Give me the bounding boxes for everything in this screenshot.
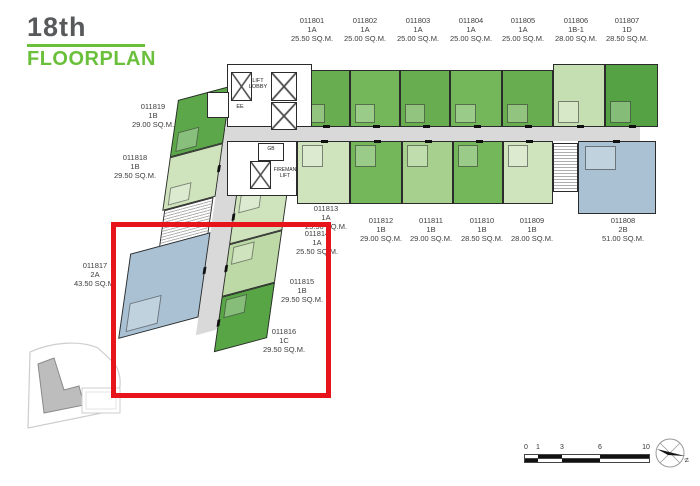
unit-label-011817: 0118172A43.50 SQ.M. xyxy=(74,261,116,288)
compass-icon: N xyxy=(650,436,692,474)
building-footprint xyxy=(38,358,84,413)
scale-tick-10: 10 xyxy=(642,444,650,451)
unit-011811-type: 1B xyxy=(410,225,452,234)
unit-011813-plan xyxy=(297,141,350,204)
unit-011810-plan xyxy=(453,141,503,204)
unit-011804-type: 1A xyxy=(450,25,492,34)
fireman-lift-icon xyxy=(250,161,271,189)
unit-label-011804: 0118041A25.00 SQ.M. xyxy=(450,16,492,43)
unit-011808-plan xyxy=(578,141,656,214)
unit-011818-type: 1B xyxy=(114,162,156,171)
unit-011803-area: 25.00 SQ.M. xyxy=(397,34,439,43)
scale-tick-6: 6 xyxy=(598,444,602,451)
unit-label-011811: 0118111B29.00 SQ.M. xyxy=(410,216,452,243)
unit-011806-plan xyxy=(553,64,605,127)
unit-011801-area: 25.50 SQ.M. xyxy=(291,34,333,43)
unit-011807-area: 28.50 SQ.M. xyxy=(606,34,648,43)
unit-011801-id: 011801 xyxy=(291,16,333,25)
unit-011810-type: 1B xyxy=(461,225,503,234)
unit-011808-area: 51.00 SQ.M. xyxy=(602,234,644,243)
lift-lobby-label: LIFT LOBBY xyxy=(243,78,273,91)
unit-011818-area: 29.50 SQ.M. xyxy=(114,171,156,180)
unit-011809-area: 28.00 SQ.M. xyxy=(511,234,553,243)
unit-011802-id: 011802 xyxy=(344,16,386,25)
unit-011803-id: 011803 xyxy=(397,16,439,25)
page-title-label: FLOORPLAN xyxy=(27,48,156,71)
ee-label: EE xyxy=(232,104,248,110)
gb-text: GB xyxy=(267,146,274,152)
unit-011811-area: 29.00 SQ.M. xyxy=(410,234,452,243)
scale-tick-0: 0 xyxy=(524,444,528,451)
unit-011802-plan xyxy=(350,70,400,127)
unit-011805-type: 1A xyxy=(502,25,544,34)
unit-011804-plan xyxy=(450,70,502,127)
lift-lobby-line1: LIFT xyxy=(252,78,263,84)
unit-label-011803: 0118031A25.00 SQ.M. xyxy=(397,16,439,43)
unit-011806-id: 011806 xyxy=(555,16,597,25)
unit-label-011808: 0118082B51.00 SQ.M. xyxy=(602,216,644,243)
fireman-lift-label: FIREMAN LIFT xyxy=(271,168,299,180)
compass-north-letter: N xyxy=(682,457,689,463)
unit-011805-id: 011805 xyxy=(502,16,544,25)
page-title-floor: 18th xyxy=(27,12,87,43)
unit-011811-id: 011811 xyxy=(410,216,452,225)
main-stairwell xyxy=(553,143,578,192)
unit-label-011805: 0118051A25.00 SQ.M. xyxy=(502,16,544,43)
unit-011819-area: 29.00 SQ.M. xyxy=(132,120,174,129)
unit-011804-id: 011804 xyxy=(450,16,492,25)
floorplan-page: LIFT LOBBY EE GB FIREMAN LIFT 0118011A25… xyxy=(0,0,700,486)
fireman-line2: LIFT xyxy=(271,174,299,180)
unit-label-011802: 0118021A25.00 SQ.M. xyxy=(344,16,386,43)
unit-011803-type: 1A xyxy=(397,25,439,34)
scale-bar: 0 1 3 6 10 xyxy=(524,444,650,466)
unit-label-011812: 0118121B29.00 SQ.M. xyxy=(360,216,402,243)
unit-label-011810: 0118101B28.50 SQ.M. xyxy=(461,216,503,243)
unit-011804-area: 25.00 SQ.M. xyxy=(450,34,492,43)
unit-011802-area: 25.00 SQ.M. xyxy=(344,34,386,43)
unit-011806-area: 28.00 SQ.M. xyxy=(555,34,597,43)
scale-bar-rows xyxy=(524,454,650,463)
unit-011807-type: 1D xyxy=(606,25,648,34)
unit-011810-id: 011810 xyxy=(461,216,503,225)
title-underline xyxy=(27,44,145,47)
unit-011807-id: 011807 xyxy=(606,16,648,25)
unit-011806-type: 1B-1 xyxy=(555,25,597,34)
unit-011809-type: 1B xyxy=(511,225,553,234)
unit-011809-plan xyxy=(503,141,553,204)
unit-label-011801: 0118011A25.50 SQ.M. xyxy=(291,16,333,43)
unit-011810-area: 28.50 SQ.M. xyxy=(461,234,503,243)
unit-011817-area: 43.50 SQ.M. xyxy=(74,279,116,288)
unit-011813-type: 1A xyxy=(305,213,347,222)
unit-011819-id: 011819 xyxy=(132,102,174,111)
unit-011808-id: 011808 xyxy=(602,216,644,225)
ee-text: EE xyxy=(236,104,243,110)
unit-011809-id: 011809 xyxy=(511,216,553,225)
service-shaft-block xyxy=(207,92,229,118)
unit-011817-id: 011817 xyxy=(74,261,116,270)
lift-3-icon xyxy=(271,102,297,130)
gb-label: GB xyxy=(258,147,284,153)
highlight-box xyxy=(111,222,331,398)
unit-label-011809: 0118091B28.00 SQ.M. xyxy=(511,216,553,243)
lift-2-icon xyxy=(271,72,297,101)
unit-011801-type: 1A xyxy=(291,25,333,34)
unit-label-011818: 0118181B29.50 SQ.M. xyxy=(114,153,156,180)
unit-011812-area: 29.00 SQ.M. xyxy=(360,234,402,243)
scale-tick-1: 1 xyxy=(536,444,540,451)
unit-011813-id: 011813 xyxy=(305,204,347,213)
unit-011812-type: 1B xyxy=(360,225,402,234)
unit-011812-id: 011812 xyxy=(360,216,402,225)
unit-011807-plan xyxy=(605,64,658,127)
unit-011817-type: 2A xyxy=(74,270,116,279)
unit-011808-type: 2B xyxy=(602,225,644,234)
scale-tick-3: 3 xyxy=(560,444,564,451)
lift-lobby-line2: LOBBY xyxy=(243,84,273,90)
unit-011805-plan xyxy=(502,70,553,127)
unit-011803-plan xyxy=(400,70,450,127)
unit-011818-id: 011818 xyxy=(114,153,156,162)
unit-label-011819: 0118191B29.00 SQ.M. xyxy=(132,102,174,129)
unit-011802-type: 1A xyxy=(344,25,386,34)
unit-011819-type: 1B xyxy=(132,111,174,120)
unit-011811-plan xyxy=(402,141,453,204)
unit-label-011806: 0118061B-128.00 SQ.M. xyxy=(555,16,597,43)
unit-011805-area: 25.00 SQ.M. xyxy=(502,34,544,43)
unit-011812-plan xyxy=(350,141,402,204)
unit-label-011807: 0118071D28.50 SQ.M. xyxy=(606,16,648,43)
